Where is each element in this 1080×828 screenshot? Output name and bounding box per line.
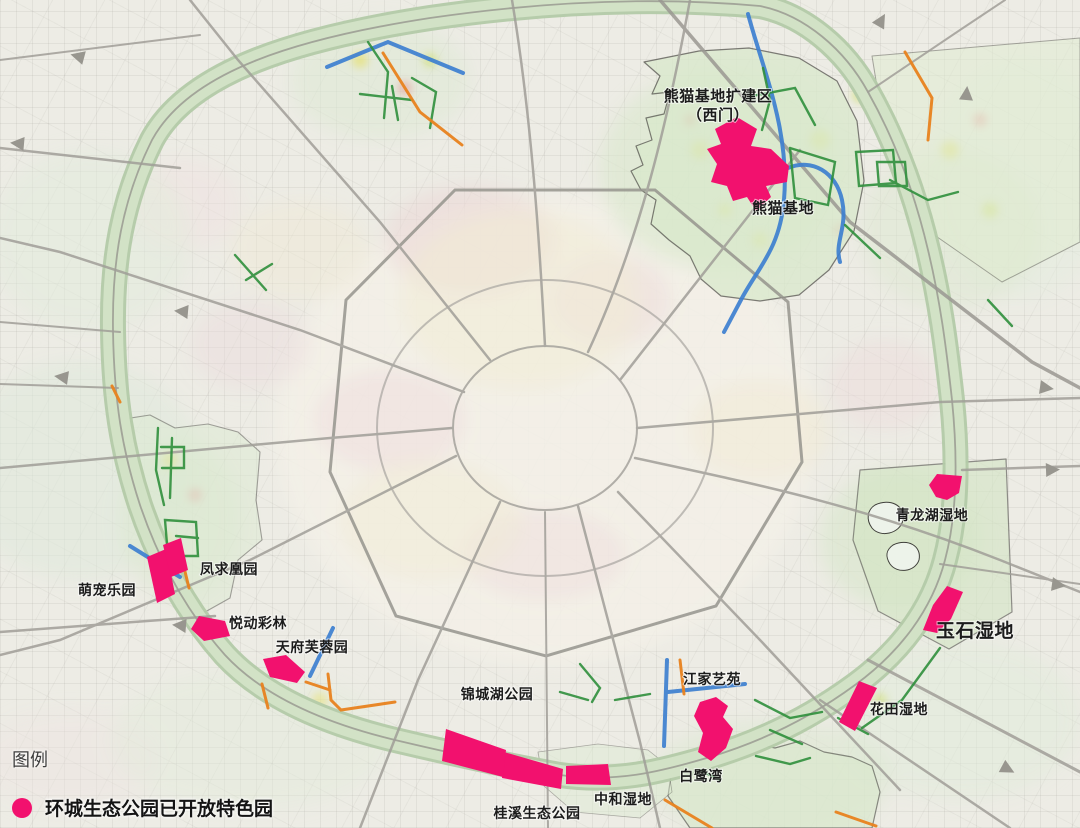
park-label-yushi-shidi: 玉石湿地 bbox=[936, 619, 1014, 642]
park-label-xiongmao-jidi: 熊猫基地 bbox=[752, 199, 814, 217]
park-label-jinchenghu-gongyuan: 锦城湖公园 bbox=[461, 686, 534, 702]
park-marker-icon bbox=[12, 798, 32, 818]
park-label-zhonghe-shidi: 中和湿地 bbox=[594, 791, 652, 807]
park-area-zhonghe-shidi[interactable] bbox=[566, 764, 611, 785]
map-canvas: 熊猫基地扩建区（西门）熊猫基地青龙湖湿地玉石湿地花田湿地江家艺苑白鹭湾中和湿地桂… bbox=[0, 0, 1080, 828]
park-label-huatian-shidi: 花田湿地 bbox=[870, 701, 928, 717]
park-label-fengqiuhuang-yuan: 凤求凰园 bbox=[200, 561, 258, 577]
park-label-guixi-shengtai-gongyuan: 桂溪生态公园 bbox=[493, 805, 581, 821]
park-label-bailuwan: 白鹭湾 bbox=[679, 768, 723, 784]
legend-title: 图例 bbox=[12, 746, 273, 772]
greenway-trail bbox=[560, 692, 588, 700]
direction-arrow bbox=[872, 10, 891, 29]
park-label-qinglonghu-shidi: 青龙湖湿地 bbox=[896, 507, 969, 523]
greenway-trail bbox=[988, 300, 1012, 326]
legend-item-label: 环城生态公园已开放特色园 bbox=[45, 794, 273, 821]
direction-arrow bbox=[1046, 463, 1060, 477]
park-label-mengchong-leyuan: 萌宠乐园 bbox=[78, 582, 136, 598]
direction-arrow bbox=[173, 304, 188, 319]
legend: 图例 环城生态公园已开放特色园 bbox=[12, 746, 273, 821]
map-svg: 熊猫基地扩建区（西门）熊猫基地青龙湖湿地玉石湿地花田湿地江家艺苑白鹭湾中和湿地桂… bbox=[0, 0, 1080, 828]
park-label-jiangjia-yiyuan: 江家艺苑 bbox=[683, 671, 741, 687]
greenway-trail bbox=[615, 694, 650, 700]
qinglong-lake-outline bbox=[887, 542, 920, 570]
park-label-yuedong-cailin: 悦动彩林 bbox=[229, 615, 287, 631]
greenway-trail bbox=[580, 664, 600, 702]
direction-arrow bbox=[1039, 380, 1055, 396]
river bbox=[664, 660, 667, 746]
park-label-tianfu-furongyuan: 天府芙蓉园 bbox=[276, 639, 349, 655]
legend-item: 环城生态公园已开放特色园 bbox=[12, 794, 273, 821]
